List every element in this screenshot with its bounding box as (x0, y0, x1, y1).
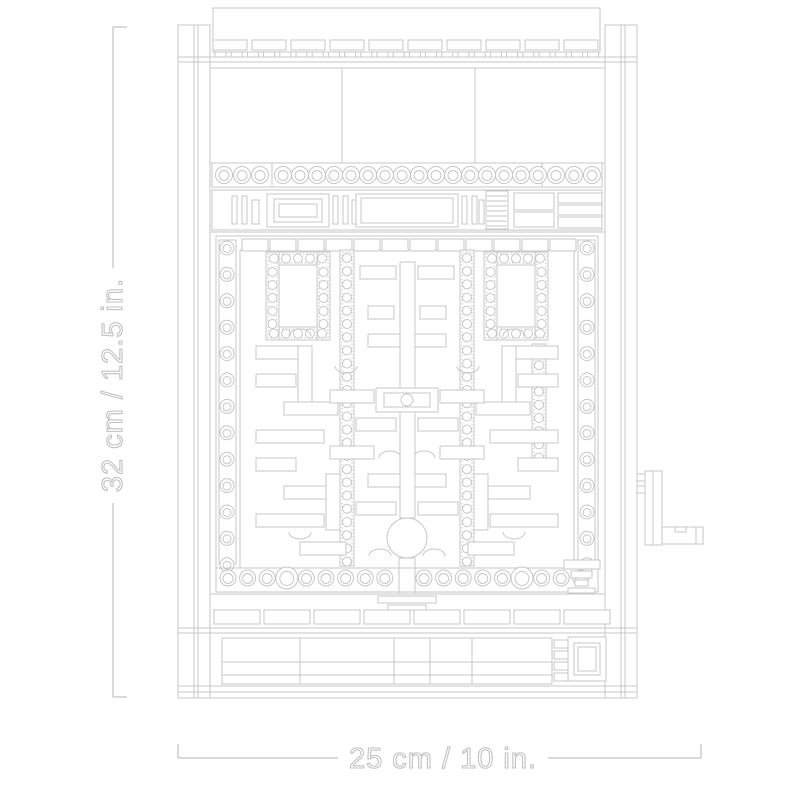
top-tile-rows (213, 40, 599, 57)
stud-row (216, 167, 601, 184)
width-dimension-label: 25 cm / 10 in. (349, 743, 537, 775)
maze-top-bricks (242, 239, 576, 251)
side-bracket (637, 471, 703, 545)
pacman-pedestal (399, 558, 415, 594)
side-crank (564, 560, 600, 569)
product-dimension-diagram: 32 cm / 12.5 in. 25 cm / 10 in. (0, 0, 800, 800)
marquee-band (210, 190, 605, 232)
deck-tile-row (214, 610, 610, 624)
dimension-diagram-page: 32 cm / 12.5 in. 25 cm / 10 in. (0, 0, 800, 800)
lower-cabinet (178, 628, 637, 698)
pacman-circle (387, 518, 427, 558)
ladder-element (486, 191, 508, 229)
height-dimension-label: 32 cm / 12.5 in. (97, 278, 129, 492)
